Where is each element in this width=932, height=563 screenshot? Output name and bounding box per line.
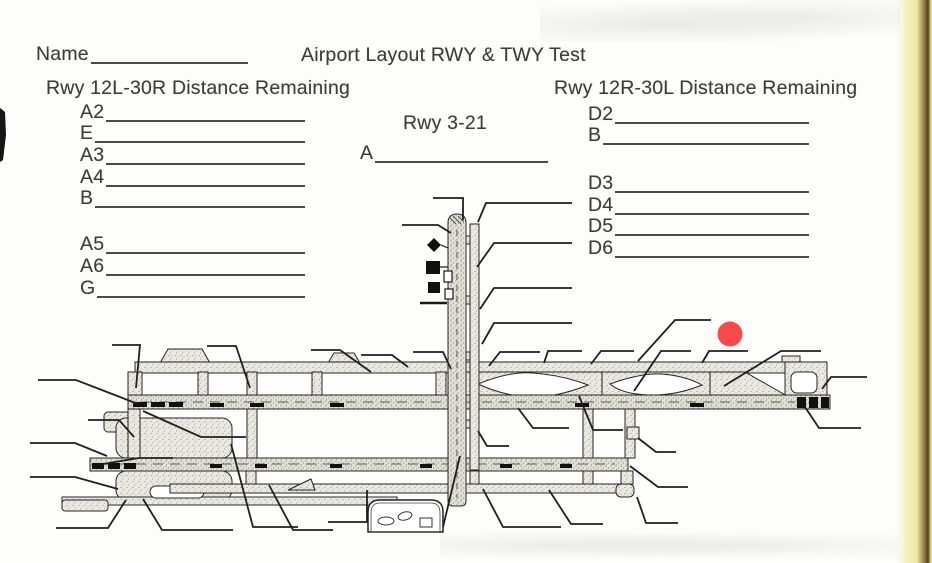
callout-line [30,477,118,489]
scan-edge-mark [0,108,6,162]
callout-line [518,408,569,428]
south-parallel-taxiway [170,479,634,497]
callout-line [38,380,138,404]
scanner-noise-top [540,0,900,42]
scanner-noise-bottom [440,528,900,563]
hangar-building [368,500,443,532]
callout-line [478,431,509,446]
callout-line [402,225,451,233]
callout-line [638,320,711,361]
callout-line [30,443,107,456]
callout-line [805,407,861,428]
callout-line [638,438,676,452]
red-dot-marker [718,322,743,347]
taxiway-parallel-3-21 [466,224,479,484]
scanned-test-page: { "header": { "name_label": "Name", "nam… [0,0,932,563]
callout-line [477,243,572,267]
runway-12r-30l [90,458,628,471]
callout-line [702,351,748,363]
runway-3-21 [448,214,466,506]
callout-line [483,489,561,527]
callout-line [637,497,678,523]
callout-line [480,288,572,309]
airport-diagram [0,0,932,563]
callout-line [478,203,572,222]
callout-line [544,351,582,363]
scanned-page-edge [896,0,932,563]
callout-line [549,490,603,524]
callout-line [328,490,367,522]
callout-line [822,377,867,389]
callout-line [630,466,688,487]
terminal-buildings [420,238,453,303]
callout-line [482,323,572,344]
